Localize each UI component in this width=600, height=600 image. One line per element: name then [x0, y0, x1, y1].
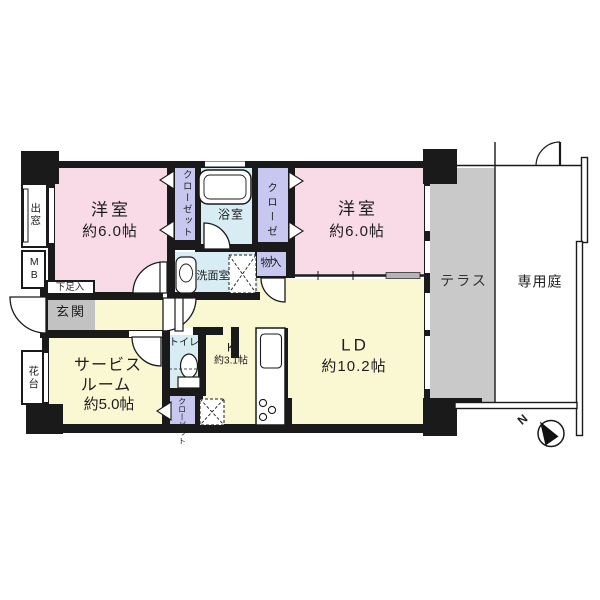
bay-window-label: 出窓 [29, 203, 41, 228]
closet-door-icon [289, 172, 303, 190]
service-room-label-2: ルーム [81, 377, 132, 395]
closet-door-icon [160, 171, 174, 189]
garden-fence [455, 403, 577, 409]
closet3-label: クローゼット [177, 397, 186, 425]
meter-box-label: MB [28, 256, 40, 282]
kitchen-sink-icon [261, 334, 282, 368]
bedroom1-area: 約6.0帖 [82, 224, 138, 241]
bay-window-glass-icon [24, 189, 29, 242]
living-dining-label: LD [341, 337, 369, 356]
toilet-bowl-icon [181, 354, 198, 378]
washroom-door-swing-icon [261, 278, 285, 302]
flower-stand-label: 花台 [27, 366, 39, 391]
bathroom-label: 浴室 [218, 208, 244, 221]
garden-label: 専用庭 [518, 274, 563, 289]
toilet-label: トイレ [169, 338, 199, 349]
fixtures-overlay [0, 0, 600, 600]
kitchen-area: 約3.1帖 [214, 356, 248, 367]
hall-door-leaf [175, 298, 183, 331]
closet-door-icon [160, 221, 174, 239]
washroom-label: 洗面室 [197, 270, 230, 282]
terrace-label: テラス [440, 273, 488, 288]
kitchen-label: K [227, 341, 235, 354]
entrance-label: 玄関 [56, 305, 86, 319]
garden-fence [582, 158, 588, 243]
bedroom2-area: 約6.0帖 [329, 224, 385, 241]
storage-label: 物入 [261, 258, 282, 270]
shoe-cabinet-label: 下足入 [56, 283, 85, 293]
window-icon [205, 162, 245, 167]
vanity-basin-icon [180, 264, 193, 282]
closet2-label: クローゼット [266, 182, 278, 230]
bedroom1-door-leaf [160, 262, 167, 293]
stove-burner-icon [259, 399, 266, 406]
stove-burner-icon [268, 406, 275, 413]
service-room-area: 約5.0帖 [84, 397, 135, 414]
service-room-label-1: サービス [74, 357, 142, 375]
floor-plan: 洋室 約6.0帖 洋室 約6.0帖 クローゼット 浴室 クローゼット 洗面室 物… [0, 0, 600, 600]
living-dining-area: 約10.2帖 [321, 359, 386, 376]
closet1-label: クローゼット [180, 170, 190, 239]
stove-burner-icon [259, 413, 266, 420]
bedroom1-door-swing-icon [133, 262, 164, 293]
closet-door-icon [289, 222, 303, 240]
sliding-door-panel [386, 273, 420, 279]
bathroom-door-swing-icon [204, 223, 230, 249]
bedroom2-label: 洋室 [338, 201, 378, 220]
toilet-tank-icon [178, 377, 200, 388]
front-door-swing-icon [10, 297, 46, 333]
garden-gate-swing-icon [536, 142, 560, 166]
bedroom1-label: 洋室 [91, 202, 131, 221]
closet-door-icon [157, 402, 171, 420]
